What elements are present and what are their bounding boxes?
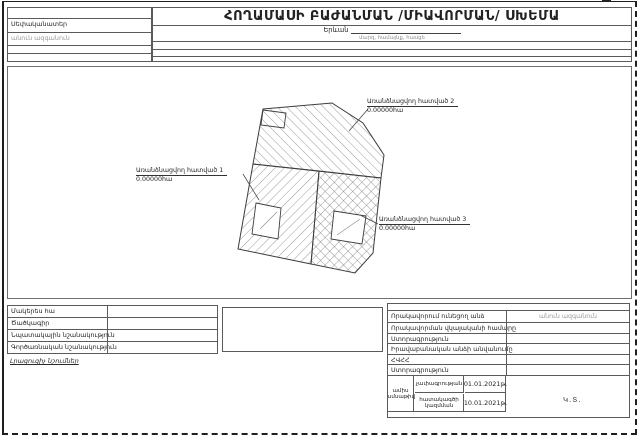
parcel-3-area: 0.00000հա <box>379 225 415 232</box>
cert-row-value <box>506 365 629 375</box>
location-caption: մարզ, համայնք, հասցե <box>153 35 631 41</box>
attr-row-value <box>107 306 217 317</box>
attr-row-value <box>107 330 217 341</box>
date-row-value: 10.01.2021թ. <box>465 394 506 412</box>
dates-subtable: ամիս ամսաթիվ չափագրության 01.01.2021թ. հ… <box>388 376 506 412</box>
owner-table-empty-row <box>8 8 151 19</box>
stamp-box <box>222 307 383 352</box>
date-row-value: 01.01.2021թ. <box>465 376 506 393</box>
owner-table: Սեփականատեր անուն ազգանուն <box>7 7 152 62</box>
title-block-empty-row <box>153 50 631 57</box>
parcel-2-name: Առանձնացվող հատված 2 <box>367 98 458 107</box>
parcel-plan-svg <box>8 67 631 298</box>
parcel-1-callout: Առանձնացվող հատված 1 0.00000հա <box>136 167 227 184</box>
seal-place-mark: Կ.Տ. <box>563 396 582 404</box>
owner-table-empty-row <box>8 54 151 61</box>
attr-row-value <box>107 342 217 354</box>
owner-name-placeholder: անուն ազգանուն <box>8 33 151 46</box>
cert-row-value <box>506 355 629 364</box>
certification-table: Որակավորում ունեցող անձ անուն ազգանուն Ո… <box>387 303 630 418</box>
date-row-label: հատակագծի կազմման <box>415 394 464 412</box>
parcel-1-area: 0.00000հա <box>136 176 172 183</box>
document-page: Սեփականատեր անուն ազգանուն ՀՈՂԱՄԱՍԻ ԲԱԺԱ… <box>0 0 640 439</box>
cert-row-value <box>506 344 629 354</box>
cert-row-value <box>506 323 629 333</box>
cert-row-value <box>506 334 629 343</box>
owner-label: Սեփականատեր <box>8 19 151 33</box>
title-block-empty-row <box>153 57 631 63</box>
attributes-table: Մակերես հա Ծածկագիր Նպատակային նշանակութ… <box>7 305 218 354</box>
building-2-outline <box>331 211 366 244</box>
page-edge-artifact <box>602 0 611 2</box>
parcel-1-name: Առանձնացվող հատված 1 <box>136 167 227 176</box>
dates-header-line1: ամիս <box>392 388 408 394</box>
parcel-2-callout: Առանձնացվող հատված 2 0.00000հա <box>367 98 458 115</box>
parcel-2-area: 0.00000հա <box>367 107 403 114</box>
cert-person-placeholder: անուն ազգանուն <box>506 311 629 322</box>
page-title: ՀՈՂԱՄԱՍԻ ԲԱԺԱՆՄԱՆ /ՄԻԱՎՈՐՄԱՆ/ ՍԽԵՄԱ <box>224 9 560 24</box>
parcel-3-name: Առանձնացվող հատված 3 <box>379 216 470 225</box>
title-block: ՀՈՂԱՄԱՍԻ ԲԱԺԱՆՄԱՆ /ՄԻԱՎՈՐՄԱՆ/ ՍԽԵՄԱ Երևա… <box>152 7 632 62</box>
cert-empty-row <box>388 304 629 311</box>
building-1-outline <box>252 203 281 239</box>
attr-row-value <box>107 318 217 329</box>
title-block-empty-row <box>153 42 631 50</box>
location-blank-line <box>351 26 461 34</box>
parcel-3-callout: Առանձնացվող հատված 3 0.00000հա <box>379 216 470 233</box>
dates-header-line2: ամսաթիվ <box>388 394 415 400</box>
date-row-label: չափագրության <box>415 376 464 393</box>
additional-notes-label: Լրացուցիչ նշումներ <box>10 357 79 365</box>
owner-table-empty-row <box>8 46 151 54</box>
location-value: Երևան <box>323 26 348 34</box>
drawing-area: Առանձնացվող հատված 1 0.00000հա Առանձնացվ… <box>7 66 632 299</box>
dates-header-cell: ամիս ամսաթիվ <box>388 376 414 412</box>
